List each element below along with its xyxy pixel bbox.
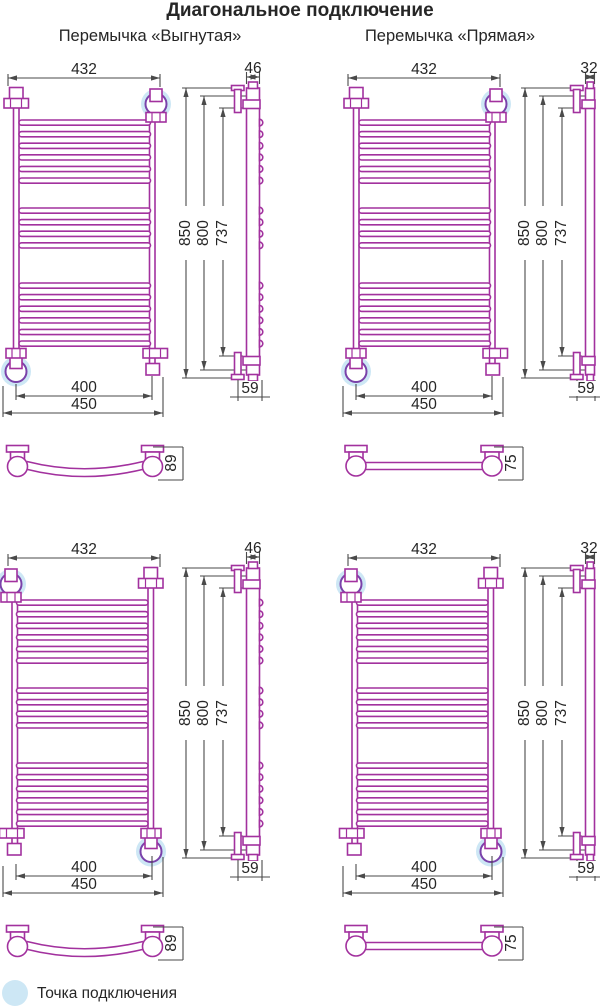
quadrant-curved-bottom [0, 540, 270, 960]
technical-drawing: 432 400 450 [0, 0, 600, 1008]
legend: Точка подключения [2, 980, 177, 1006]
jumper-view [7, 446, 184, 481]
connection-point-icon [2, 980, 28, 1006]
front-view [341, 88, 511, 387]
jumper-view [345, 926, 523, 961]
quadrant-straight-top [341, 60, 600, 480]
quadrant-straight-bottom [336, 540, 600, 960]
front-view [1, 88, 171, 387]
front-view-mirrored [336, 568, 506, 867]
quadrant-curved-top [1, 60, 270, 480]
side-view [177, 60, 270, 401]
diagram-page: Диагональное подключение Перемычка «Выгн… [0, 0, 600, 1008]
side-view [516, 540, 600, 881]
jumper-view [7, 926, 184, 961]
side-view [516, 60, 600, 401]
side-view [177, 540, 270, 881]
jumper-view [345, 446, 523, 481]
front-view-mirrored [0, 568, 166, 867]
legend-label: Точка подключения [37, 985, 177, 1003]
